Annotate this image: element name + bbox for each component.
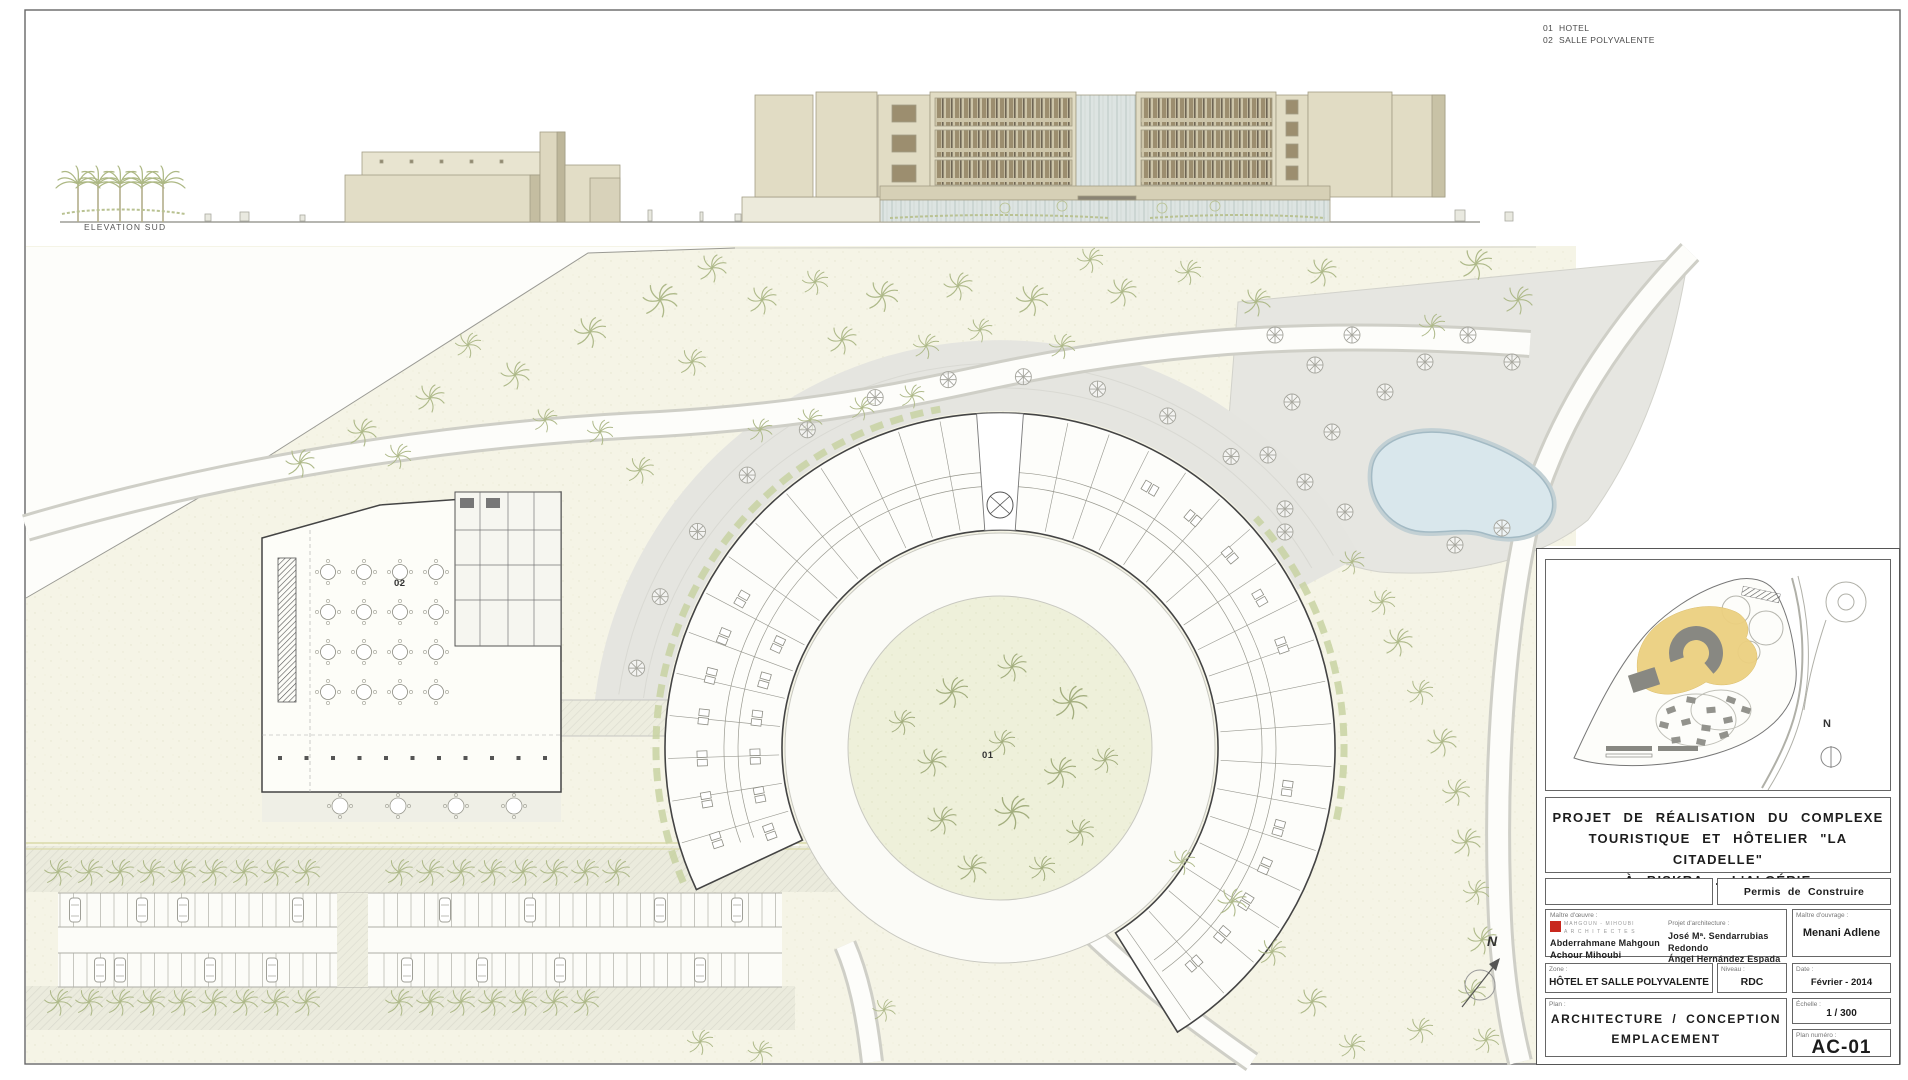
south-elevation-drawing <box>56 92 1513 222</box>
architects-logo: MAHGOUN - MIHOUBI A R C H I T E C T E S <box>1550 921 1665 936</box>
architecture-label: Projet d'architecture : <box>1668 920 1786 927</box>
salle-elevation <box>345 132 620 222</box>
keyplan-north-letter: N <box>1823 718 1831 730</box>
drawing-legend: 01HOTEL 02SALLE POLYVALENTE <box>1543 22 1655 47</box>
oeuvre-name2: Achour Mihoubi <box>1550 950 1665 962</box>
project-title: PROJET DE RÉALISATION DU COMPLEXE TOURIS… <box>1545 797 1891 873</box>
legend-label: SALLE POLYVALENTE <box>1559 35 1655 45</box>
niveau-label: Niveau : <box>1721 966 1745 973</box>
owner-box: Maître d'ouvrage : Menani Adlene <box>1792 909 1891 957</box>
arch-name1: José Mª. Sendarrubias Redondo <box>1668 931 1786 954</box>
plan-value-line1: ARCHITECTURE / CONCEPTION <box>1546 1009 1786 1029</box>
plan-north-letter: N <box>1487 933 1497 949</box>
plan-label: Plan : <box>1549 1001 1566 1008</box>
permit-box: Permis de Construire <box>1717 878 1891 905</box>
hotel-elevation <box>742 92 1445 222</box>
date-label: Date : <box>1796 966 1813 973</box>
elevation-label: ELEVATION SUD <box>84 222 166 232</box>
hotel-plan-label: 01 <box>982 750 994 761</box>
title-block: N PROJET DE RÉALISATION DU COMPLEXE TOUR… <box>1536 548 1900 1065</box>
date-box: Date : Février - 2014 <box>1792 963 1891 993</box>
drawing-sheet: 01HOTEL 02SALLE POLYVALENTE ELEVATION SU… <box>0 0 1908 1080</box>
logo-line1: MAHGOUN - MIHOUBI <box>1564 921 1636 929</box>
legend-item-salle: 02SALLE POLYVALENTE <box>1543 34 1655 46</box>
plan-value-line2: EMPLACEMENT <box>1546 1029 1786 1049</box>
legend-item-hotel: 01HOTEL <box>1543 22 1655 34</box>
plan-number-box: Plan numéro : AC-01 <box>1792 1029 1891 1057</box>
key-plan: N <box>1545 559 1891 791</box>
oeuvre-name1: Abderrahmane Mahgoun <box>1550 938 1665 950</box>
permit-label: Permis de Construire <box>1744 886 1864 898</box>
logo-line2: A R C H I T E C T E S <box>1564 929 1636 937</box>
zone-box: Zone : HÔTEL ET SALLE POLYVALENTE <box>1545 963 1713 993</box>
legend-label: HOTEL <box>1559 23 1589 33</box>
project-title-line1: PROJET DE RÉALISATION DU COMPLEXE <box>1546 807 1890 828</box>
scale-box: Échelle : 1 / 300 <box>1792 998 1891 1024</box>
plan-name-box: Plan : ARCHITECTURE / CONCEPTION EMPLACE… <box>1545 998 1787 1057</box>
logo-red-square <box>1550 921 1561 932</box>
project-title-line2: TOURISTIQUE ET HÔTELIER "LA CITADELLE" <box>1546 828 1890 870</box>
empty-permit-box <box>1545 878 1713 905</box>
designers-box: Maître d'œuvre : MAHGOUN - MIHOUBI A R C… <box>1545 909 1787 957</box>
zone-value: HÔTEL ET SALLE POLYVALENTE <box>1546 964 1712 996</box>
plan-num-label: Plan numéro : <box>1796 1032 1836 1039</box>
key-plan-map <box>1546 560 1890 790</box>
site-plan <box>26 246 1690 1064</box>
salle-plan-label: 02 <box>394 578 406 589</box>
maitre-ouvrage-label: Maître d'ouvrage : <box>1796 912 1848 919</box>
legend-num: 02 <box>1543 34 1559 46</box>
maitre-oeuvre-label: Maître d'œuvre : <box>1550 912 1665 919</box>
zone-label: Zone : <box>1549 966 1567 973</box>
echelle-label: Échelle : <box>1796 1001 1821 1008</box>
legend-num: 01 <box>1543 22 1559 34</box>
niveau-box: Niveau : RDC <box>1717 963 1787 993</box>
